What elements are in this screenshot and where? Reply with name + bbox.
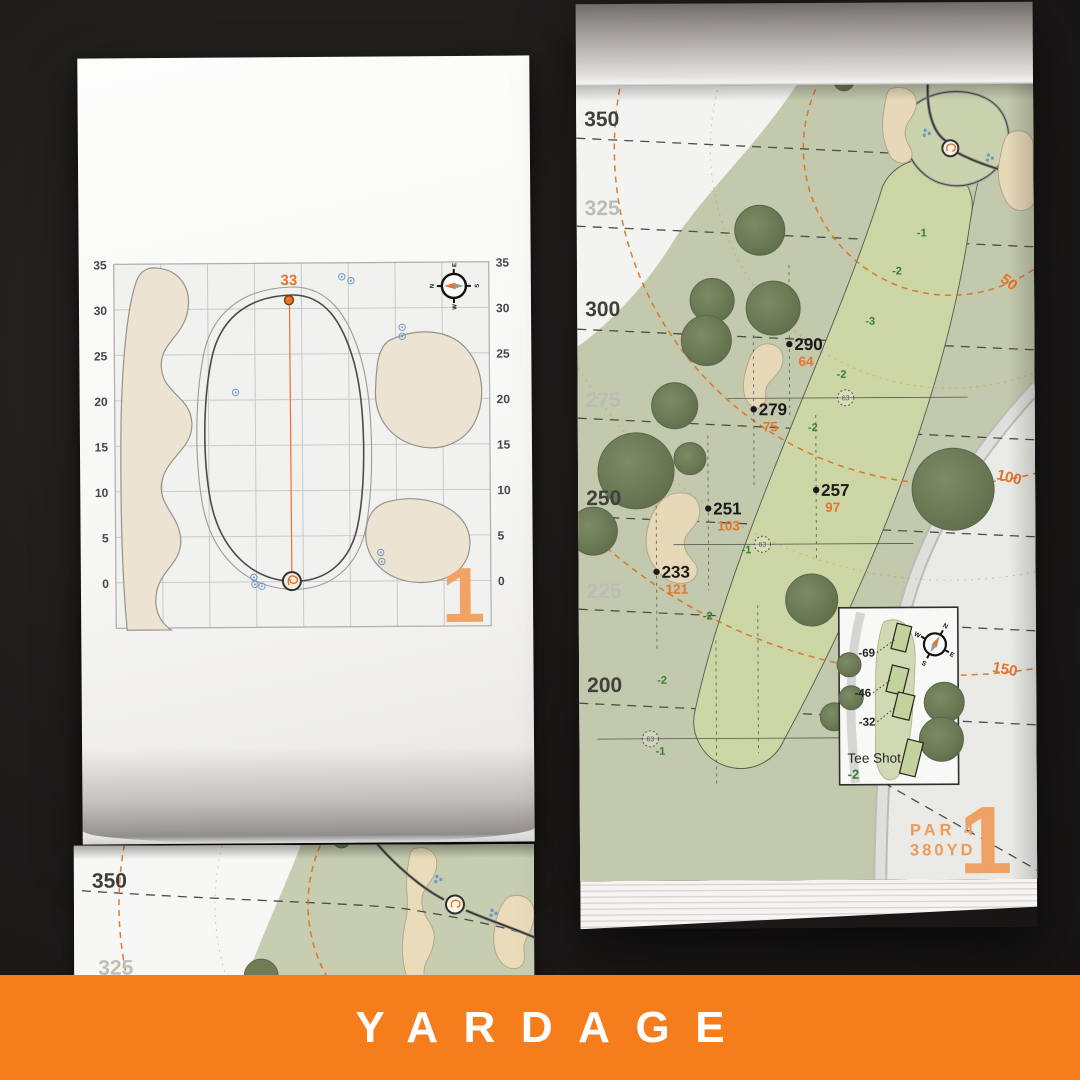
title-banner: YARDAGE <box>0 975 1080 1080</box>
under-page: 350 325 <box>74 844 534 977</box>
right-booklet: 63 63 63 <box>576 2 1038 929</box>
axis-label: 15 <box>95 440 109 454</box>
under-page-map-svg: 350 325 <box>74 844 534 977</box>
flipped-page-fold <box>576 2 1033 86</box>
hole-map-svg: 63 63 63 <box>576 84 1037 881</box>
pin-icon <box>283 572 301 590</box>
axis-label: 0 <box>102 577 109 591</box>
bunker-shape <box>375 331 482 448</box>
axis-label: 0 <box>498 574 505 588</box>
axis-label: 35 <box>93 258 107 272</box>
axis-label: 5 <box>498 529 505 543</box>
banner-title: YARDAGE <box>330 1003 750 1053</box>
compass-s-label: S <box>475 284 481 288</box>
green-detail-map: 33 <box>89 254 517 637</box>
front-point-icon <box>284 296 293 305</box>
pin-distance-label: 33 <box>280 272 297 289</box>
compass-e-label: E <box>452 263 458 267</box>
axis-label: 25 <box>496 347 510 361</box>
yardage-label: 325 <box>98 957 133 977</box>
left-booklet-page: 33 <box>77 55 534 844</box>
page-fold-shadow <box>82 746 535 844</box>
hole-map-page: 63 63 63 <box>576 84 1037 881</box>
compass-n-label: N <box>430 284 436 288</box>
paper-grain <box>576 84 1037 881</box>
axis-labels-right: 35 30 25 20 15 10 5 0 <box>496 256 512 589</box>
axis-label: 25 <box>94 349 108 363</box>
yardage-label: 350 <box>92 870 127 893</box>
axis-label: 15 <box>497 438 511 452</box>
axis-label: 35 <box>496 256 510 270</box>
pin-icon <box>446 895 464 913</box>
hole-number: 1 <box>441 551 485 637</box>
compass-w-label: W <box>452 304 458 310</box>
axis-label: 5 <box>102 531 109 545</box>
axis-label: 10 <box>497 483 511 497</box>
page-stack-edges <box>580 879 1037 929</box>
axis-label: 30 <box>94 304 108 318</box>
axis-label: 30 <box>496 301 510 315</box>
scene: 33 <box>0 0 1080 1080</box>
axis-label: 20 <box>497 392 511 406</box>
axis-label: 20 <box>94 395 108 409</box>
axis-labels-left: 35 30 25 20 15 10 5 0 <box>93 258 109 591</box>
axis-label: 10 <box>95 486 109 500</box>
green-grid-svg: 33 <box>89 254 517 637</box>
